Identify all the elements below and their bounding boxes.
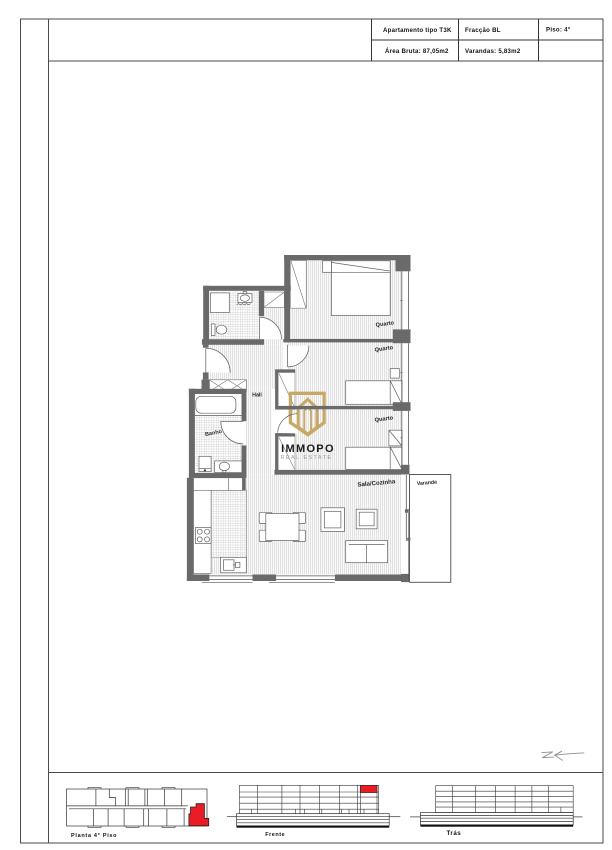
svg-text:Hall: Hall	[252, 393, 262, 399]
svg-text:Fracção BL: Fracção BL	[465, 27, 501, 34]
svg-text:IMMOPO: IMMOPO	[281, 443, 335, 455]
svg-text:Piso: 4°: Piso: 4°	[546, 27, 571, 34]
svg-text:Varandas: 5,83m2: Varandas: 5,83m2	[465, 48, 521, 55]
svg-text:Trás: Trás	[447, 830, 462, 837]
svg-text:Área Bruta: 87,05m2: Área Bruta: 87,05m2	[385, 48, 449, 55]
svg-text:REAL ESTATE: REAL ESTATE	[280, 455, 332, 461]
svg-text:Apartamento tipo T3K: Apartamento tipo T3K	[383, 27, 452, 34]
svg-text:Planta 4° Piso: Planta 4° Piso	[71, 833, 117, 839]
svg-text:Frente: Frente	[265, 832, 285, 838]
